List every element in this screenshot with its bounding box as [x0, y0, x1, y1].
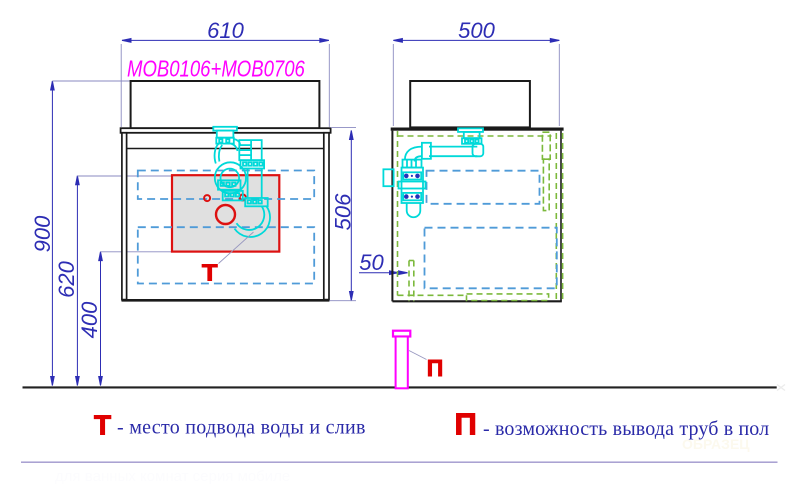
svg-text:400: 400: [77, 301, 102, 338]
svg-text:620: 620: [54, 260, 79, 297]
svg-text:ОБРАЗЕЦ: ОБРАЗЕЦ: [682, 436, 750, 452]
svg-text:П: П: [427, 355, 444, 381]
svg-text:П: П: [455, 407, 477, 442]
svg-text:610: 610: [207, 18, 244, 43]
svg-text:для ванных комнат серия мобиле: для ванных комнат серия мобиле: [55, 468, 290, 485]
svg-text:900: 900: [30, 215, 55, 252]
svg-text:500: 500: [458, 18, 495, 43]
svg-text:MOB0106+MOB0706: MOB0106+MOB0706: [127, 57, 305, 83]
svg-text:Т: Т: [202, 261, 218, 286]
svg-text:Т: Т: [94, 410, 111, 441]
svg-text:- место подвода воды и слив: - место подвода воды и слив: [117, 417, 366, 439]
svg-text:50: 50: [359, 250, 384, 275]
svg-text:506: 506: [331, 193, 356, 230]
